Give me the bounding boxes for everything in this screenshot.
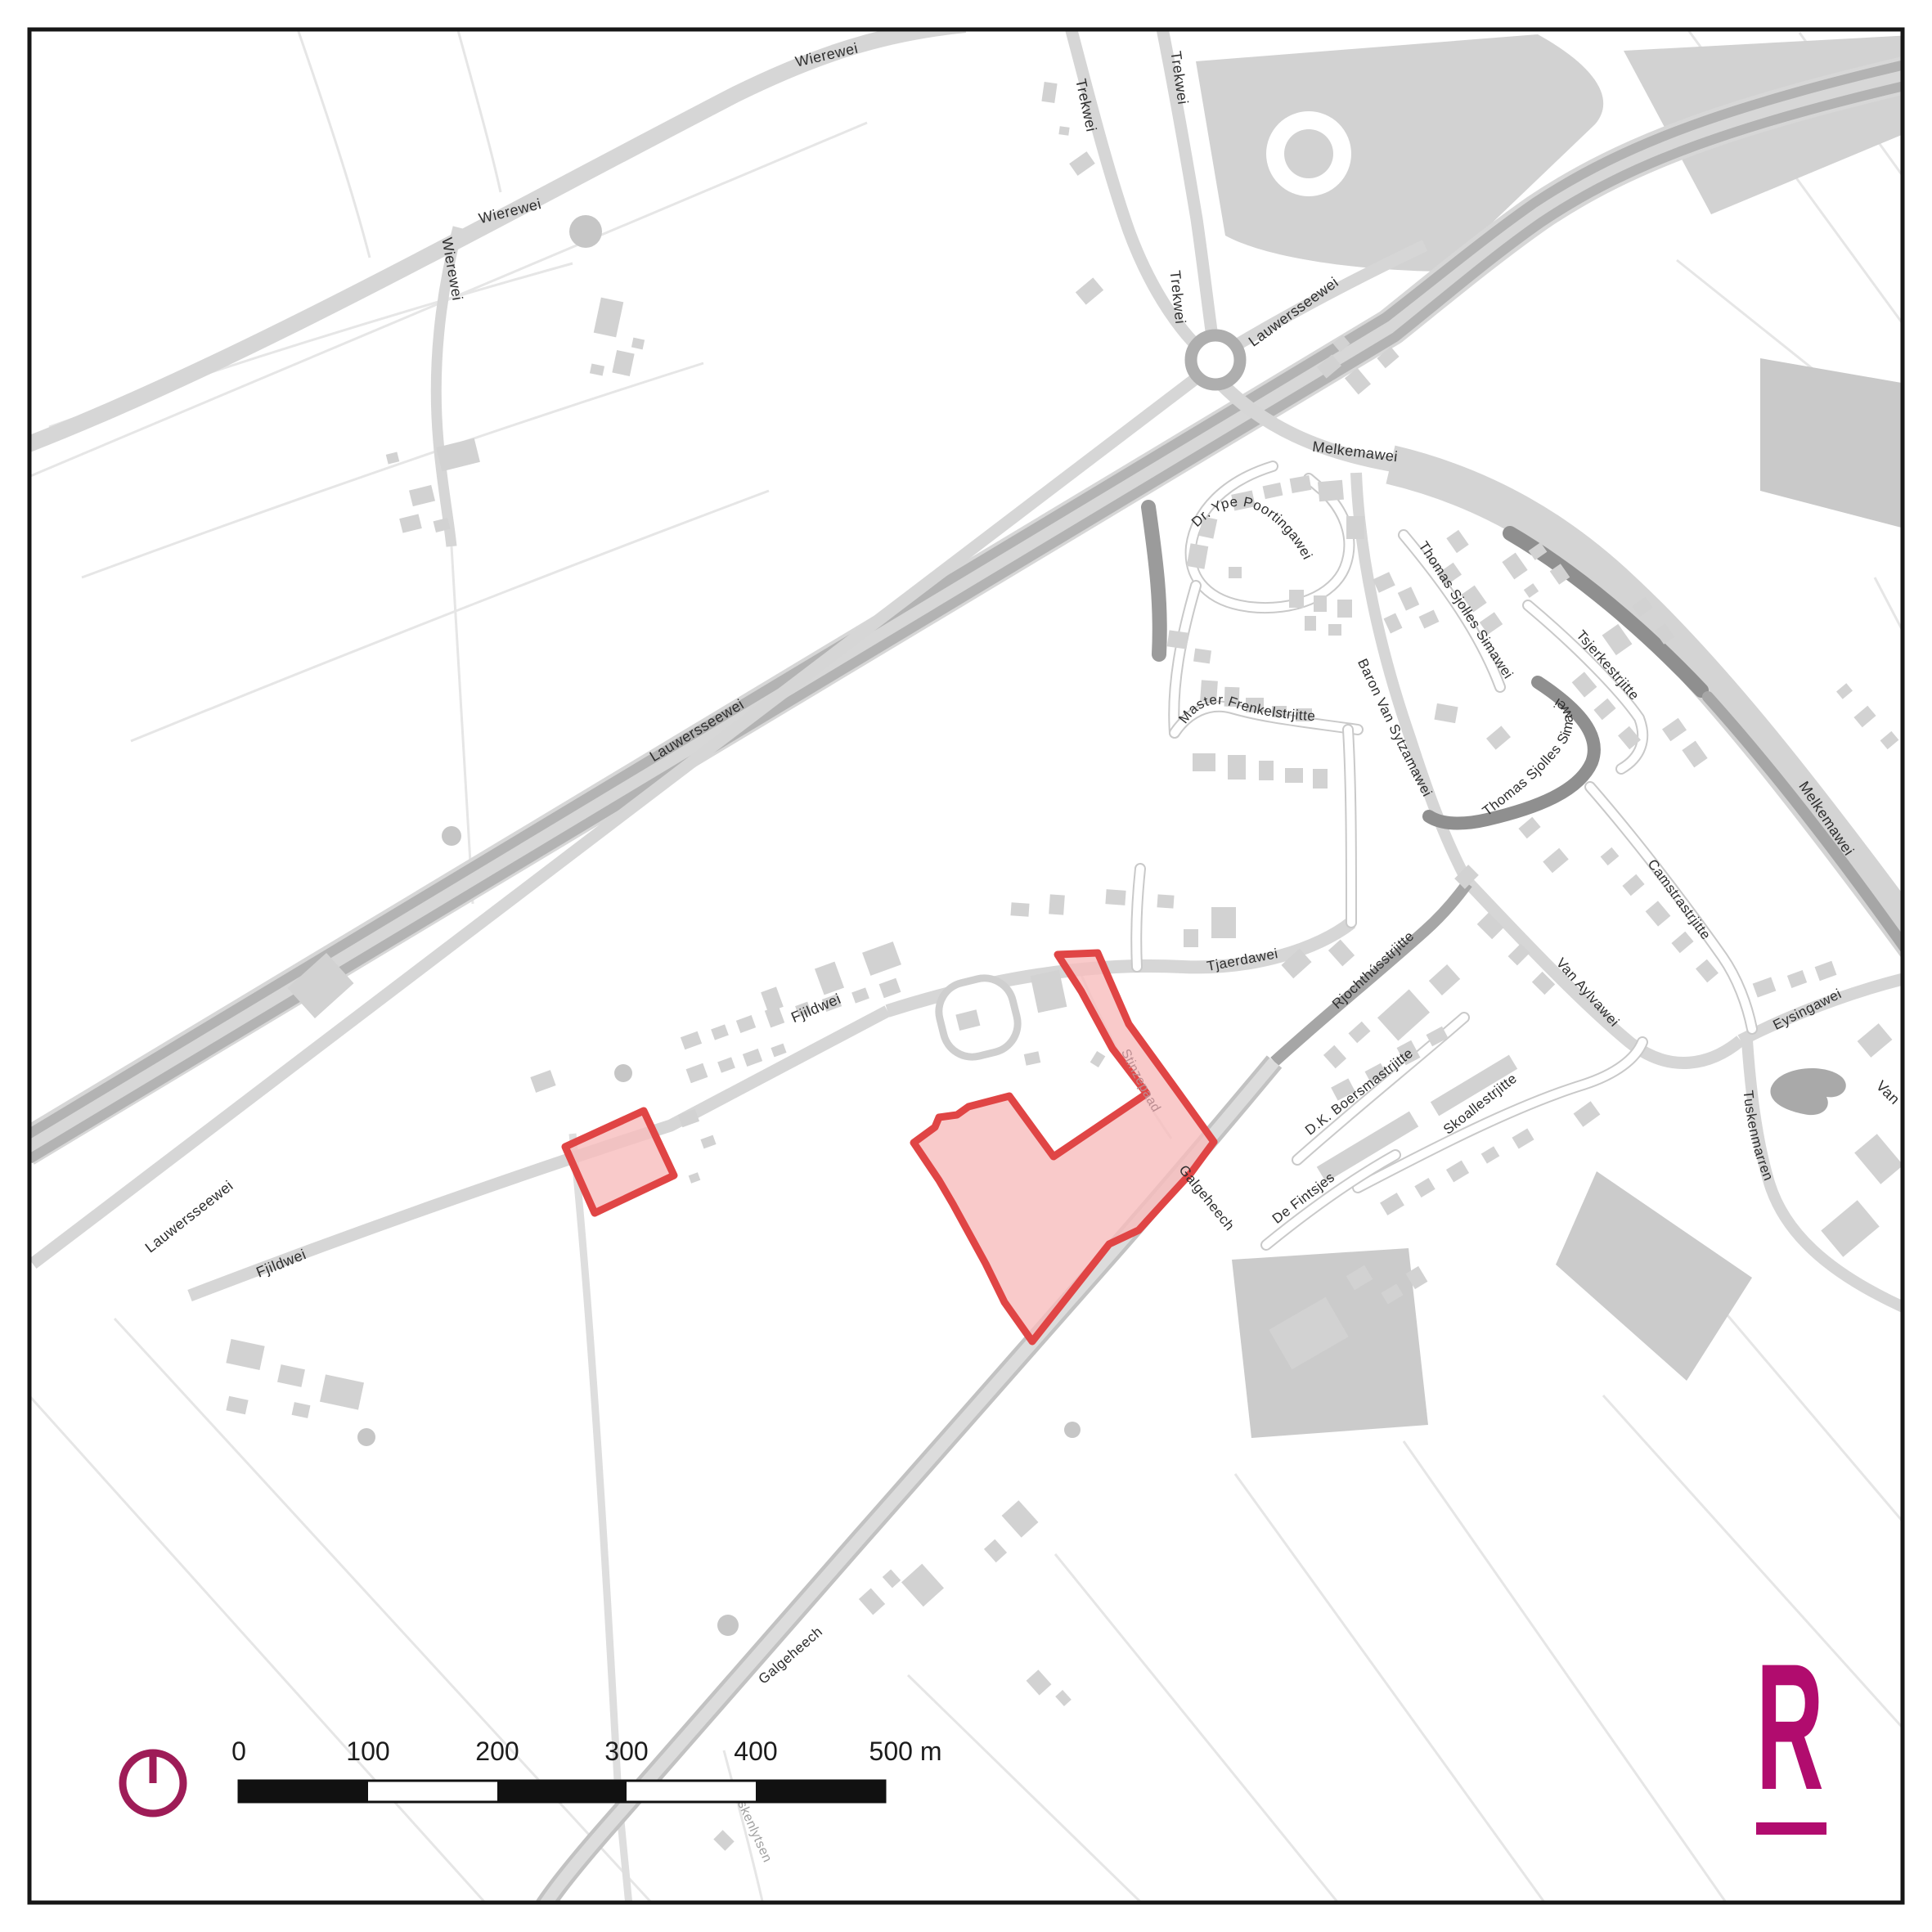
scale-segment [756, 1781, 885, 1802]
building [1289, 590, 1304, 608]
tree-dot [442, 826, 461, 846]
building [1058, 126, 1069, 136]
logo-r: R [1756, 1627, 1826, 1835]
village-connector-street [1348, 730, 1351, 923]
scale-segment [239, 1781, 368, 1802]
building [1229, 567, 1242, 578]
building [1167, 630, 1189, 649]
scale-label: 0 [231, 1737, 246, 1766]
scale-label: 200 [475, 1737, 519, 1766]
scale-label: 500 m [869, 1737, 942, 1766]
building [1193, 753, 1215, 771]
tree-dot [569, 215, 602, 248]
building [1346, 516, 1364, 539]
building [1010, 902, 1029, 916]
building [1157, 894, 1174, 908]
building [1105, 889, 1126, 905]
building [1313, 769, 1328, 789]
building [1211, 907, 1236, 938]
building [1328, 624, 1341, 636]
scale-segment [627, 1781, 756, 1802]
interchange-loop [1284, 129, 1333, 178]
building [1285, 768, 1303, 783]
map-background [0, 0, 1932, 1932]
building [1337, 600, 1352, 618]
building [1184, 929, 1198, 947]
scale-label: 100 [346, 1737, 389, 1766]
building [1193, 649, 1211, 664]
tree-dot [717, 1615, 739, 1636]
building [1049, 894, 1065, 914]
building [1314, 595, 1327, 612]
map-document: WiereweiWiereweiWiereweiTrekweiTrekweiTr… [0, 0, 1932, 1932]
scale-segment [368, 1781, 497, 1802]
logo-letter: R [1756, 1627, 1824, 1828]
map-canvas: WiereweiWiereweiWiereweiTrekweiTrekweiTr… [0, 0, 1932, 1932]
scale-label: 400 [734, 1737, 777, 1766]
building [1041, 82, 1057, 103]
building [1318, 480, 1344, 502]
stadium-lane [1136, 869, 1140, 967]
building [1228, 755, 1246, 780]
building [1305, 616, 1316, 631]
tree-dot [1064, 1422, 1081, 1438]
scale-label: 300 [604, 1737, 648, 1766]
roundabout [1191, 335, 1240, 384]
scale-segment [497, 1781, 627, 1802]
tree-dot [614, 1064, 632, 1082]
tree-dot [357, 1428, 375, 1446]
building [1259, 761, 1274, 780]
logo-underline [1756, 1822, 1826, 1835]
